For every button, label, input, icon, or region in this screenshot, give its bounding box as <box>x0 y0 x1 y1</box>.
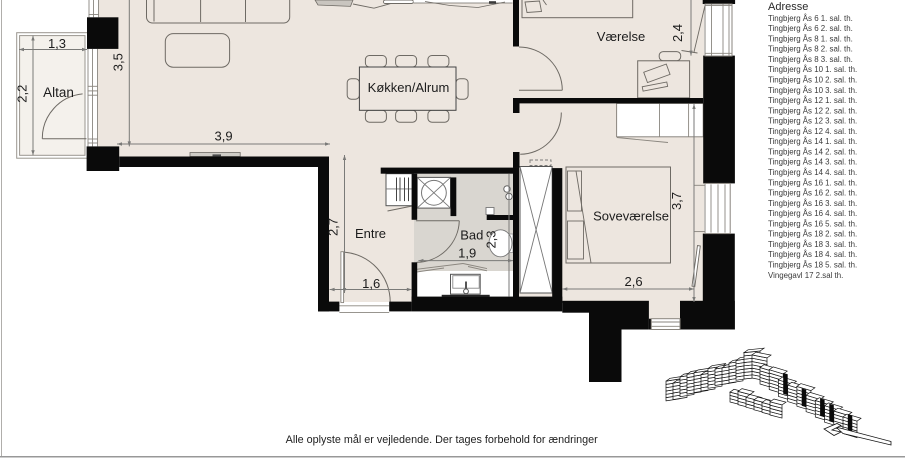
svg-text:Tingbjerg Ås 16 1. sal. th.: Tingbjerg Ås 16 1. sal. th. <box>768 178 857 187</box>
svg-text:Adresse: Adresse <box>768 1 808 13</box>
svg-text:Tingbjerg Ås 16 4. sal. th.: Tingbjerg Ås 16 4. sal. th. <box>768 209 857 218</box>
svg-text:3,5: 3,5 <box>111 53 126 71</box>
svg-text:3,9: 3,9 <box>215 129 233 144</box>
svg-text:Tingbjerg Ås 12 4. sal. th.: Tingbjerg Ås 12 4. sal. th. <box>768 127 857 136</box>
svg-text:2,4: 2,4 <box>670 24 685 42</box>
svg-text:Tingbjerg Ås 14 1. sal. th.: Tingbjerg Ås 14 1. sal. th. <box>768 137 857 146</box>
svg-text:Tingbjerg Ås 14 2. sal. th.: Tingbjerg Ås 14 2. sal. th. <box>768 147 857 156</box>
svg-text:Tingbjerg Ås 8 2. sal. th.: Tingbjerg Ås 8 2. sal. th. <box>768 45 853 54</box>
svg-text:Tingbjerg Ås 18 2. sal. th.: Tingbjerg Ås 18 2. sal. th. <box>768 230 857 239</box>
svg-text:Tingbjerg Ås 12 2. sal. th.: Tingbjerg Ås 12 2. sal. th. <box>768 106 857 115</box>
svg-text:Tingbjerg Ås 16 2. sal. th.: Tingbjerg Ås 16 2. sal. th. <box>768 189 857 198</box>
svg-text:Tingbjerg Ås 10 3. sal. th.: Tingbjerg Ås 10 3. sal. th. <box>768 86 857 95</box>
svg-text:2,3: 2,3 <box>484 230 499 248</box>
svg-text:Tingbjerg Ås 6 1. sal. th.: Tingbjerg Ås 6 1. sal. th. <box>768 14 853 23</box>
svg-text:Tingbjerg Ås 12 1. sal. th.: Tingbjerg Ås 12 1. sal. th. <box>768 96 857 105</box>
svg-text:Entre: Entre <box>355 226 386 241</box>
svg-text:Tingbjerg Ås 18 4. sal. th.: Tingbjerg Ås 18 4. sal. th. <box>768 250 857 259</box>
svg-text:Tingbjerg Ås 14 4. sal. th.: Tingbjerg Ås 14 4. sal. th. <box>768 168 857 177</box>
svg-text:Tingbjerg Ås 8 3. sal. th.: Tingbjerg Ås 8 3. sal. th. <box>768 55 853 64</box>
svg-text:Værelse: Værelse <box>597 29 645 44</box>
svg-text:Tingbjerg Ås 8 1. sal. th.: Tingbjerg Ås 8 1. sal. th. <box>768 34 853 43</box>
svg-text:Tingbjerg Ås 6 2. sal. th.: Tingbjerg Ås 6 2. sal. th. <box>768 24 853 33</box>
svg-text:Altan: Altan <box>43 85 74 100</box>
svg-text:Tingbjerg Ås 14 3. sal. th.: Tingbjerg Ås 14 3. sal. th. <box>768 158 857 167</box>
svg-text:Soveværelse: Soveværelse <box>593 209 669 224</box>
svg-text:2,6: 2,6 <box>625 274 643 289</box>
svg-text:Vingegavl 17 2.sal th.: Vingegavl 17 2.sal th. <box>768 271 843 280</box>
svg-text:Alle oplyste mål er vejledende: Alle oplyste mål er vejledende. Der tage… <box>286 434 598 446</box>
svg-text:Tingbjerg Ås 10 1. sal. th.: Tingbjerg Ås 10 1. sal. th. <box>768 65 857 74</box>
svg-text:3,7: 3,7 <box>669 192 684 210</box>
svg-text:Køkken/Alrum: Køkken/Alrum <box>368 80 450 95</box>
svg-text:2,2: 2,2 <box>15 85 30 103</box>
svg-text:1,6: 1,6 <box>362 276 380 291</box>
svg-text:Tingbjerg Ås 16 5. sal. th.: Tingbjerg Ås 16 5. sal. th. <box>768 219 857 228</box>
svg-text:2,7: 2,7 <box>326 218 341 236</box>
svg-text:Tingbjerg Ås 10 2. sal. th.: Tingbjerg Ås 10 2. sal. th. <box>768 75 857 84</box>
svg-text:Tingbjerg Ås 18 3. sal. th.: Tingbjerg Ås 18 3. sal. th. <box>768 240 857 249</box>
svg-text:Tingbjerg Ås 16 3. sal. th.: Tingbjerg Ås 16 3. sal. th. <box>768 199 857 208</box>
svg-text:Tingbjerg Ås 12 3. sal. th.: Tingbjerg Ås 12 3. sal. th. <box>768 117 857 126</box>
svg-text:1,9: 1,9 <box>458 246 476 261</box>
svg-text:Bad: Bad <box>460 227 483 242</box>
svg-text:Tingbjerg Ås 18 5. sal. th.: Tingbjerg Ås 18 5. sal. th. <box>768 261 857 270</box>
svg-text:1,3: 1,3 <box>48 36 66 51</box>
